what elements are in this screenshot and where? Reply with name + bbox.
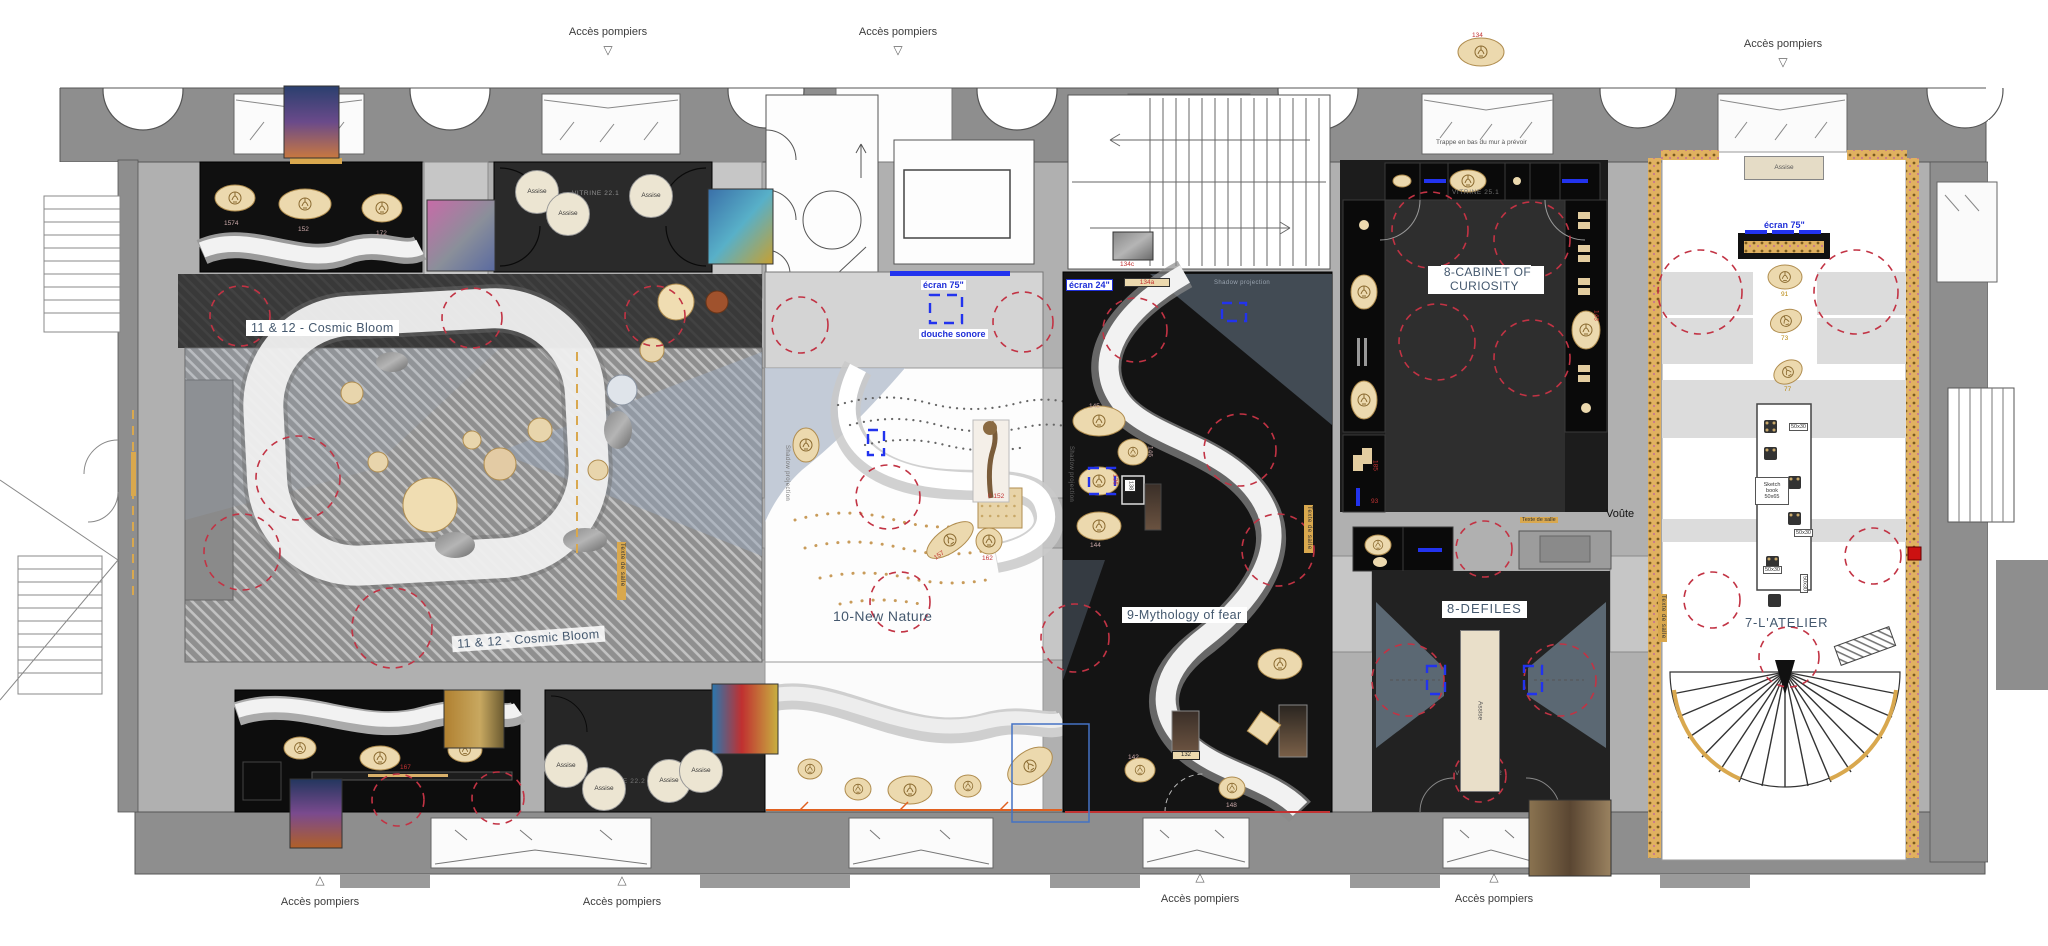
acces-pompiers-bottom-2: Accès pompiers: [562, 896, 682, 909]
annotation-145: 145: [1089, 403, 1100, 410]
texte-de-salle-3: Texte de salle: [1658, 594, 1667, 642]
seat-assise: Assise: [544, 744, 588, 788]
room-cabinet: [1340, 160, 1611, 571]
voute-label: Voûte: [1606, 508, 1634, 521]
annotation-162: 162: [982, 555, 993, 562]
room-label-cabinet: 8-CABINET OF CURIOSITY: [1428, 266, 1544, 294]
annotation-172: 172: [376, 230, 387, 237]
shadow-projection-2: Shadow projection: [1214, 280, 1270, 287]
texte-de-salle-2: Texte de salle: [1304, 505, 1313, 553]
annotation-93: 93: [1371, 498, 1378, 505]
table-50x30-label: 50x30: [1763, 566, 1782, 574]
annotation-77: 77: [1784, 386, 1791, 393]
triangle-down-icon: ▽: [1773, 56, 1793, 70]
annotation-91: 91: [1781, 291, 1788, 298]
annotation-138: 138: [1124, 479, 1136, 492]
triangle-up-icon: △: [1484, 871, 1504, 885]
main-staircase: [1068, 95, 1330, 269]
acces-pompiers-bottom-3: Accès pompiers: [1140, 893, 1260, 906]
entrance-vestibule: [766, 95, 878, 275]
seat-assise: Assise: [546, 192, 590, 236]
floor-plan-stage: Accès pompiers ▽ Accès pompiers ▽ Accès …: [0, 0, 2048, 946]
annotation-134a: 134a: [1124, 278, 1170, 287]
room-label-mythology: 9-Mythology of fear: [1122, 607, 1247, 623]
annotation-143: 143: [1592, 310, 1599, 321]
triangle-down-icon: ▽: [598, 44, 618, 58]
triangle-up-icon: △: [310, 874, 330, 888]
shadow-projection-1: Shadow projection: [783, 445, 790, 501]
screen-75-label-atelier: écran 75": [1762, 220, 1807, 230]
seat-assise: Assise: [679, 749, 723, 793]
annotation-134: 134: [1472, 32, 1483, 39]
bench-atelier: Assise: [1744, 156, 1824, 180]
annotation-148: 148: [1226, 802, 1237, 809]
sketchbook-label: Sketch book 50x65: [1755, 477, 1789, 505]
annotation-134c: 134c: [1120, 261, 1134, 268]
annotation-146: 146: [1146, 446, 1153, 457]
left-wing: [0, 160, 138, 874]
room-atelier: [1648, 150, 1921, 860]
annotation-152: 152: [298, 226, 309, 233]
vitrine-25-1-label: VITRINE 25.1: [1452, 189, 1499, 196]
annotation-136: 136: [1111, 474, 1118, 485]
annotation-1574: 1574: [224, 220, 238, 227]
triangle-up-icon: △: [1190, 871, 1210, 885]
acces-pompiers-top-3: Accès pompiers: [1723, 38, 1843, 51]
annotation-142: 142: [1128, 754, 1139, 761]
annotation-185: 185: [1371, 460, 1378, 471]
room-mythology: [1063, 272, 1332, 812]
texte-de-salle-1: Texte de salle: [617, 542, 626, 600]
texte-de-salle-4: Texte de salle: [1520, 517, 1558, 523]
table-50x30-label: 50x30: [1789, 423, 1808, 431]
room-cosmic-bloom-upper-left: [200, 158, 422, 272]
room-label-defiles: 8-DEFILES: [1442, 601, 1527, 618]
screen-75-label: écran 75": [921, 280, 966, 290]
annotation-132: 132: [1172, 751, 1200, 760]
bench-defiles: Assise: [1460, 630, 1500, 792]
screen-24-label: écran 24": [1066, 279, 1113, 291]
annotation-0152: 0 152: [988, 493, 1004, 500]
annotation-144: 144: [1090, 542, 1101, 549]
floor-plan-svg: [0, 0, 2048, 946]
trappe-note: Trappe en bas du mur à prévoir: [1436, 139, 1527, 146]
sound-shower-label: douche sonore: [919, 329, 988, 339]
room-label-new-nature: 10-New Nature: [828, 607, 937, 625]
table-50x30-label: 50x30: [1800, 574, 1808, 593]
table-50x30-label: 50x30: [1794, 529, 1813, 537]
acces-pompiers-top-2: Accès pompiers: [838, 26, 958, 39]
right-wing: [1930, 120, 2048, 880]
inner-room: [894, 140, 1034, 264]
triangle-up-icon: △: [612, 874, 632, 888]
room-label-cosmic-bloom-1: 11 & 12 - Cosmic Bloom: [246, 320, 399, 336]
photo-tree-sculpture: [973, 420, 1009, 502]
acces-pompiers-bottom-1: Accès pompiers: [260, 896, 380, 909]
seat-assise: Assise: [629, 174, 673, 218]
room-new-nature: [765, 271, 1088, 810]
shadow-projection-3: Shadow projection: [1067, 446, 1074, 502]
annotation-167: 167: [400, 764, 411, 771]
triangle-down-icon: ▽: [888, 44, 908, 58]
exterior-ellipse: [1458, 38, 1504, 66]
acces-pompiers-bottom-4: Accès pompiers: [1434, 893, 1554, 906]
seat-assise: Assise: [582, 767, 626, 811]
room-label-atelier: 7-L'ATELIER: [1740, 615, 1833, 632]
annotation-73: 73: [1781, 335, 1788, 342]
acces-pompiers-top-1: Accès pompiers: [548, 26, 668, 39]
